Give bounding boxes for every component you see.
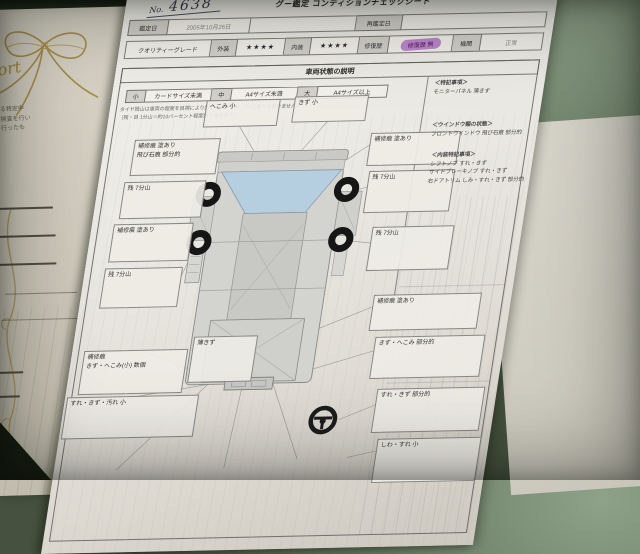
label-rub-scratch-partial: すれ・きず 部分的 bbox=[371, 387, 486, 433]
label-front-left-dent: へこみ 小 bbox=[203, 99, 281, 128]
tire-rear-right bbox=[330, 230, 351, 248]
label-wrinkle-rub-small: しわ・すれ 小 bbox=[371, 437, 482, 483]
label-scratch-dent-partial: きず・へこみ 部分的 bbox=[369, 335, 486, 379]
label-left-repair: 補修痕 塗あり bbox=[108, 223, 194, 263]
certificate-note-text: する特定申 に検査を行い を行ったも bbox=[0, 104, 31, 135]
condition-check-sheet: No. 4638 グー鑑定 コンディションチェックシート 鑑定日 2005年10… bbox=[41, 0, 560, 554]
label-rear-left-repair: 補修痕 きず・へこみ(小) 数個 bbox=[78, 349, 189, 395]
label-left-rear-tire-tread: 残 7分山 bbox=[99, 267, 183, 309]
photo-of-paper-form: { "photo": { "corner_caption": "EUVESNC5… bbox=[0, 0, 640, 480]
note-interior-remarks: ＜内装特記事項＞ シフトノブ すれ・きず サイドブレーキノブ すれ・きず 右ドア… bbox=[427, 150, 529, 186]
label-front-right-scratch: きず 小 bbox=[291, 95, 369, 123]
note-line: モニターパネル 薄きず bbox=[433, 87, 491, 97]
note-window-condition: ＜ウインドウ類の状態＞ フロントウインドウ 飛び石痕 部分的 bbox=[430, 120, 524, 139]
label-left-repair-stonechip: 補修痕 塗あり 飛び石痕 部分的 bbox=[129, 138, 221, 176]
label-bottom-left-rub-dirt: すれ・きず・汚れ 小 bbox=[61, 395, 199, 440]
label-line: きず・へこみ(小) 数個 bbox=[85, 361, 182, 372]
label-line: 飛び石痕 部分的 bbox=[136, 150, 215, 161]
label-thin-scratch: 薄きず bbox=[187, 335, 258, 383]
label-right-lower-repair: 補修痕 塗あり bbox=[368, 293, 482, 331]
note-special-remarks: ＜特記事項＞ モニターパネル 薄きず bbox=[433, 78, 492, 96]
tire-front-right bbox=[336, 180, 357, 198]
label-left-front-tire-tread: 残 7分山 bbox=[119, 180, 207, 219]
steering-wheel-icon bbox=[309, 408, 337, 433]
label-right-rear-tire-tread: 残 7分山 bbox=[366, 225, 455, 271]
